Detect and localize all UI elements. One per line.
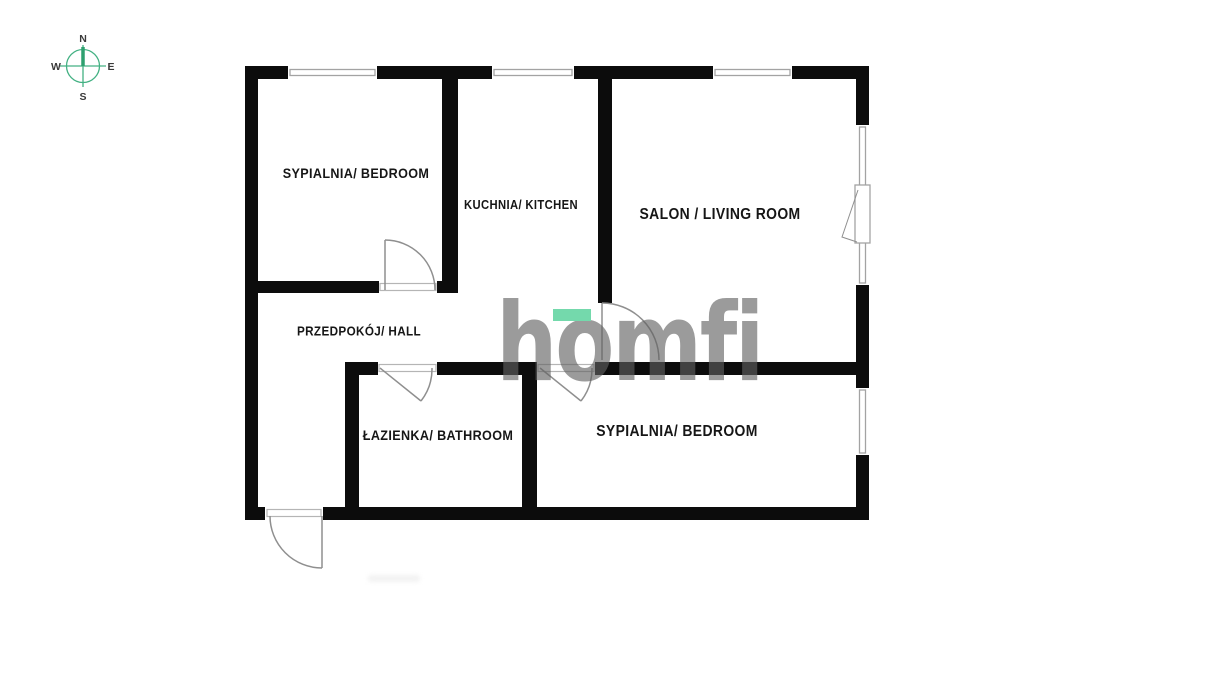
wall-bedroom1-kitchen-cap <box>437 281 458 293</box>
wall-bathroom-bedroom2 <box>522 362 537 507</box>
door-bathroom-arc <box>421 368 432 401</box>
wall-bedroom1-kitchen <box>442 79 458 293</box>
floor-plan-page: SYPIALNIA/ BEDROOM KUCHNIA/ KITCHEN SALO… <box>0 0 1228 690</box>
door-bathroom-leaf <box>380 368 421 401</box>
window-kitchen-icon <box>494 70 572 76</box>
door-entrance-arc <box>270 516 322 568</box>
wall-kitchen-salon <box>598 79 612 303</box>
faint-artifact <box>368 575 420 582</box>
door-bedroom2-leaf <box>540 368 581 401</box>
door-salon <box>602 303 659 360</box>
watermark-macron-bar <box>553 309 591 321</box>
compass-label-w: W <box>51 61 61 73</box>
window-bedroom1-icon <box>290 70 375 76</box>
door-entrance <box>270 516 322 568</box>
compass-rose-icon: N S W E <box>33 23 133 113</box>
door-bedroom1 <box>385 240 435 290</box>
wall-bottom <box>245 507 869 520</box>
threshold-entrance <box>267 510 321 517</box>
threshold-bathroom <box>379 365 436 372</box>
room-label-bedroom-2: SYPIALNIA/ BEDROOM <box>596 423 757 441</box>
threshold-bedroom1 <box>380 284 436 291</box>
windows <box>290 70 870 454</box>
room-label-kitchen: KUCHNIA/ KITCHEN <box>464 198 578 212</box>
door-thresholds <box>267 284 594 517</box>
room-label-bathroom: ŁAZIENKA/ BATHROOM <box>363 427 513 443</box>
door-bedroom2 <box>540 368 592 401</box>
threshold-bedroom2 <box>538 365 594 372</box>
wall-bedroom1-bottom <box>258 281 379 293</box>
compass-label-s: S <box>79 91 86 103</box>
wall-bathroom-left <box>345 362 359 507</box>
room-label-living-room: SALON / LIVING ROOM <box>639 206 800 224</box>
door-bathroom <box>380 368 432 401</box>
wall-hall-south-c <box>595 362 856 375</box>
door-bedroom2-arc <box>581 368 592 401</box>
door-bedroom1-arc <box>385 240 435 290</box>
window-salon-top-icon <box>715 70 790 76</box>
window-bedroom2-icon <box>860 390 866 453</box>
compass-label-n: N <box>79 33 87 45</box>
room-label-hall: PRZEDPOKÓJ/ HALL <box>297 324 421 339</box>
floor-plan <box>0 0 1228 690</box>
room-label-bedroom-1: SYPIALNIA/ BEDROOM <box>283 165 429 181</box>
walls <box>245 66 869 520</box>
compass-label-e: E <box>107 61 114 73</box>
door-salon-arc <box>602 303 659 360</box>
wall-left <box>245 66 258 520</box>
